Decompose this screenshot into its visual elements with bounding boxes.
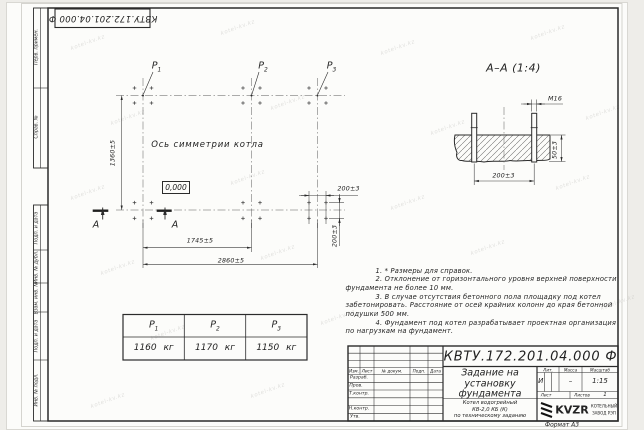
note-line: 3. В случае отсутствия бетонного пола пл…	[346, 293, 638, 302]
note-line: 4. Фундамент под котел разрабатывает про…	[346, 319, 638, 328]
sig-header-list: Лист	[362, 369, 373, 374]
load-table-header-p1: P1	[149, 319, 158, 332]
note-line: подушки 500 мм.	[346, 310, 638, 319]
sig-header-data: Дата	[430, 369, 441, 374]
titleblock-title-line1: Задание на	[461, 368, 519, 379]
corner-stamp-doc-number: КВТУ.172.201.04.000 Ф	[48, 13, 157, 23]
margin-label-inv-podl: Инв. № подл.	[35, 373, 40, 406]
dim-plan-width-inner: 1745±5	[187, 237, 214, 244]
anchor-bolt-marks	[133, 86, 328, 220]
section-mark-label-right: А	[172, 219, 179, 230]
sig-row-tkontr: Т.контр.	[349, 391, 369, 396]
format-label: Формат А3	[545, 422, 579, 429]
margin-label-inv-dubl: Инв. № дубл.	[35, 250, 40, 283]
section-cut-marks	[93, 208, 172, 220]
section-title: А–А (1:4)	[486, 62, 541, 75]
p1-sub: 1	[155, 326, 159, 332]
margin-label-perv-primen: Перв. примен.	[35, 29, 40, 65]
drawing-sheet: kotel-kv.kz kotel-kv.kz kotel-kv.kz kote…	[0, 0, 644, 430]
load-label-p3: P3	[327, 60, 336, 73]
dim-plan-height: 1360±5	[109, 139, 116, 166]
dim-section-bolt-spacing: 200±3	[492, 173, 514, 180]
margin-label-podp-data-1: Подп. и дата	[35, 211, 40, 244]
sheets-label: Листов	[574, 393, 590, 398]
sig-row-prov: Пров.	[349, 384, 362, 389]
plan-dimensions	[122, 96, 358, 269]
margin-label-vzam-inv: Взам. инв. №	[35, 281, 40, 314]
note-line: по нагрузкам на фундамент.	[346, 327, 638, 336]
titleblock-title-line2: установку	[464, 378, 515, 389]
titleblock-subtitle-line3: по техническому заданию	[454, 413, 526, 419]
logo-caption-line1: КОТЕЛЬНЫЙ	[591, 404, 617, 409]
dim-foundation-depth: 50±3	[552, 141, 559, 159]
plan-view	[93, 72, 358, 268]
sig-row-nkontr: Н.контр.	[349, 407, 370, 412]
level-mark-box: 0,000	[162, 181, 190, 195]
sheets-value: 1	[603, 392, 607, 398]
note-line: забетонировать. Расстояние от осей крайн…	[346, 301, 638, 310]
load-label-p1-sub: 1	[157, 67, 161, 73]
load-table-value-p2: 1170 кг	[195, 343, 235, 353]
note-line: 1. * Размеры для справок.	[346, 267, 638, 276]
p3-sub: 3	[277, 326, 281, 332]
titleblock-doc-number: КВТУ.172.201.04.000 Ф	[444, 349, 618, 364]
load-label-p1: P1	[152, 60, 161, 73]
mass-value: –	[569, 377, 573, 385]
load-label-p2: P2	[258, 60, 267, 73]
note-line: 2. Отклонение от горизонтального уровня …	[346, 275, 638, 284]
drawing-canvas	[0, 0, 644, 430]
axis-of-symmetry-label: Ось симметрии котла	[151, 140, 264, 150]
scale-label: Масштаб	[590, 367, 610, 372]
load-table-header-p2: P2	[210, 319, 219, 332]
sig-row-utv: Утв.	[350, 415, 360, 420]
sig-row-razrab: Разраб.	[350, 376, 368, 381]
dim-thread-m16: М16	[548, 96, 562, 103]
load-table-value-p1: 1160 кг	[134, 343, 174, 353]
sig-header-izm: Изм.	[349, 369, 359, 374]
note-line: фундамента не более 10 мм.	[346, 284, 638, 293]
load-label-p3-sub: 3	[332, 67, 336, 73]
sheet-label: Лист	[541, 393, 552, 398]
p2-sub: 2	[216, 326, 220, 332]
notes-block: 1. * Размеры для справок. 2. Отклонение …	[346, 267, 638, 337]
lit-label: Лит.	[543, 367, 553, 372]
mass-label: Масса	[564, 367, 577, 372]
level-mark: 0,000	[165, 183, 186, 192]
load-table-value-p3: 1150 кг	[256, 343, 296, 353]
dim-bolt-spacing-horizontal: 200±3	[337, 186, 359, 193]
sig-header-podp: Подп.	[413, 369, 426, 374]
load-leaders	[144, 72, 329, 94]
margin-label-sprav-no: Справ. №	[35, 115, 40, 138]
titleblock-subtitle-line2: КВ-2,0 КБ (К)	[472, 407, 508, 413]
kvzr-logo-icon	[541, 403, 552, 417]
sig-header-docno: № докум.	[382, 369, 403, 374]
section-mark-label-left: А	[93, 219, 100, 230]
kvzr-logo-text: KVZR	[555, 403, 588, 416]
titleblock-title-line3: фундамента	[459, 389, 522, 400]
titleblock-subtitle-line1: Котел водогрейный	[463, 400, 517, 406]
lit-value: И	[538, 377, 543, 385]
dim-plan-width-outer: 2860±5	[218, 258, 245, 265]
dim-bolt-spacing-vertical: 200±3	[331, 225, 338, 247]
load-table-header-p3: P3	[272, 319, 281, 332]
margin-label-podp-data-2: Подп. и дата	[35, 320, 40, 353]
scale-value: 1:15	[592, 377, 608, 385]
logo-caption-line2: ЗАВОД РЭП	[592, 410, 616, 415]
load-label-p2-sub: 2	[264, 67, 268, 73]
